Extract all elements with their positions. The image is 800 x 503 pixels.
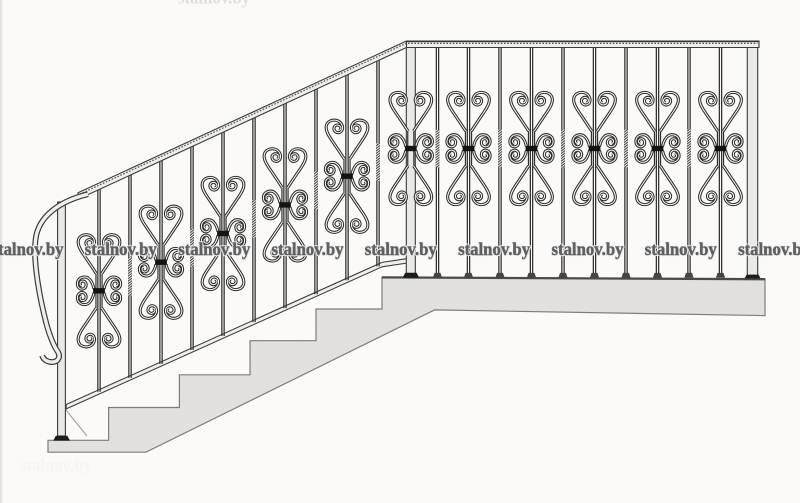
svg-text:stalnov.by: stalnov.by [85,239,157,259]
svg-text:stalnov.by: stalnov.by [272,239,344,259]
svg-text:stalnov.by: stalnov.by [0,239,64,259]
svg-text:stalnov.by: stalnov.by [645,239,717,259]
svg-text:stalnov.by: stalnov.by [365,239,437,259]
svg-text:stalnov.by: stalnov.by [738,239,800,259]
svg-text:stalnov.by: stalnov.by [20,455,92,475]
svg-text:stalnov.by: stalnov.by [178,239,250,259]
svg-text:stalnov.by: stalnov.by [552,239,624,259]
svg-text:stalnov.by: stalnov.by [458,239,530,259]
svg-text:stalnov.by: stalnov.by [178,0,250,8]
